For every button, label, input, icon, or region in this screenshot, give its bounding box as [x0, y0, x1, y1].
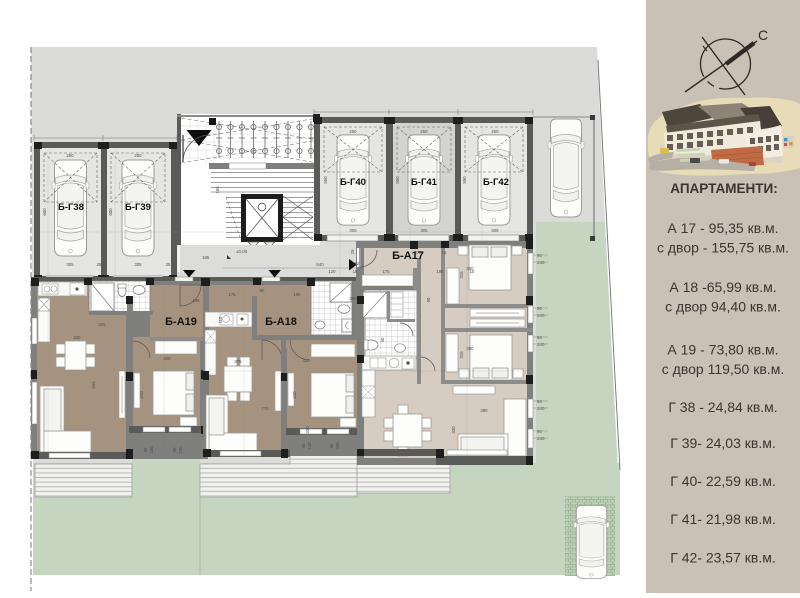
svg-text:250: 250 — [66, 153, 74, 158]
svg-text:240: 240 — [537, 313, 545, 318]
svg-text:375: 375 — [234, 359, 242, 364]
svg-text:380: 380 — [466, 266, 474, 271]
svg-text:325: 325 — [163, 356, 171, 361]
svg-text:90: 90 — [380, 337, 385, 342]
svg-text:90: 90 — [426, 297, 431, 302]
svg-text:120: 120 — [328, 269, 336, 274]
svg-text:320: 320 — [302, 358, 310, 363]
svg-text:Б-А18: Б-А18 — [265, 316, 297, 328]
svg-text:165: 165 — [215, 186, 220, 194]
svg-text:175: 175 — [382, 269, 390, 274]
svg-text:305: 305 — [66, 262, 74, 267]
svg-text:25: 25 — [350, 249, 355, 254]
svg-text:90: 90 — [260, 288, 265, 293]
svg-text:665: 665 — [91, 381, 96, 389]
svg-text:325: 325 — [98, 322, 106, 327]
svg-text:АПАРТАМЕНТИ:: АПАРТАМЕНТИ: — [670, 181, 777, 196]
svg-text:90: 90 — [537, 253, 543, 258]
svg-text:195: 195 — [192, 298, 200, 303]
svg-text:195: 195 — [202, 255, 210, 260]
svg-text:240: 240 — [307, 442, 312, 450]
svg-text:90: 90 — [172, 447, 177, 452]
svg-text:240: 240 — [537, 260, 545, 265]
svg-text:410: 410 — [292, 391, 297, 399]
svg-text:15: 15 — [353, 269, 358, 274]
svg-text:Б-А19: Б-А19 — [165, 316, 197, 328]
svg-text:90: 90 — [537, 399, 543, 404]
svg-text:240: 240 — [335, 442, 340, 450]
svg-text:90: 90 — [329, 443, 334, 448]
svg-text:Г 38 - 24,84 кв.м.: Г 38 - 24,84 кв.м. — [668, 399, 777, 415]
svg-text:305: 305 — [134, 262, 142, 267]
svg-text:600: 600 — [108, 208, 113, 216]
svg-text:380: 380 — [480, 408, 488, 413]
svg-text:360: 360 — [349, 296, 357, 301]
svg-text:Г 40- 22,59 кв.м.: Г 40- 22,59 кв.м. — [670, 473, 776, 489]
svg-text:А 18 -65,99 кв.м.: А 18 -65,99 кв.м. — [669, 279, 776, 295]
svg-text:90: 90 — [537, 429, 543, 434]
svg-text:240: 240 — [537, 342, 545, 347]
svg-text:420: 420 — [73, 335, 81, 340]
svg-text:110: 110 — [218, 316, 223, 323]
svg-text:90: 90 — [537, 335, 543, 340]
svg-text:Б-Г39: Б-Г39 — [125, 202, 151, 213]
svg-text:315: 315 — [459, 271, 464, 279]
svg-text:с двор - 155,75 кв.м.: с двор - 155,75 кв.м. — [657, 240, 789, 256]
svg-text:Б-Г41: Б-Г41 — [411, 177, 438, 188]
svg-text:330: 330 — [451, 426, 456, 434]
svg-text:А 19 - 73,80 кв.м.: А 19 - 73,80 кв.м. — [667, 342, 778, 358]
svg-text:375: 375 — [414, 250, 422, 255]
svg-text:Г 42- 23,57 кв.м.: Г 42- 23,57 кв.м. — [670, 550, 776, 566]
svg-text:90: 90 — [143, 447, 148, 452]
svg-text:с двор 94,40 кв.м.: с двор 94,40 кв.м. — [665, 299, 781, 315]
svg-text:330: 330 — [305, 426, 310, 434]
svg-text:Б-Г42: Б-Г42 — [483, 177, 509, 188]
svg-text:240: 240 — [178, 446, 183, 454]
svg-text:250: 250 — [491, 129, 499, 134]
svg-text:с двор 119,50 кв.м.: с двор 119,50 кв.м. — [662, 361, 784, 377]
svg-text:410: 410 — [139, 391, 144, 399]
svg-text:550: 550 — [323, 176, 328, 184]
svg-text:250: 250 — [420, 129, 428, 134]
svg-text:240: 240 — [149, 446, 154, 454]
svg-text:250: 250 — [134, 153, 142, 158]
svg-text:240: 240 — [537, 406, 545, 411]
svg-text:315: 315 — [459, 351, 464, 359]
svg-text:550: 550 — [395, 176, 400, 184]
svg-text:Б-Г38: Б-Г38 — [58, 202, 84, 213]
svg-text:840: 840 — [316, 262, 324, 267]
svg-text:90: 90 — [301, 443, 306, 448]
svg-text:25: 25 — [97, 262, 102, 267]
svg-text:Г 41- 21,98 кв.м.: Г 41- 21,98 кв.м. — [670, 511, 776, 527]
svg-text:±0.00: ±0.00 — [236, 249, 248, 254]
svg-text:Б-Г40: Б-Г40 — [340, 177, 366, 188]
svg-text:142: 142 — [352, 261, 360, 266]
svg-text:25: 25 — [166, 262, 171, 267]
svg-text:550: 550 — [462, 176, 467, 184]
svg-text:195: 195 — [436, 269, 444, 274]
svg-text:175: 175 — [228, 292, 236, 297]
svg-text:600: 600 — [42, 208, 47, 216]
svg-text:380: 380 — [466, 346, 474, 351]
svg-text:Г 39- 24,03 кв.м.: Г 39- 24,03 кв.м. — [670, 435, 776, 451]
svg-text:А 17 - 95,35 кв.м.: А 17 - 95,35 кв.м. — [667, 220, 778, 236]
svg-text:240: 240 — [537, 436, 545, 441]
svg-text:770: 770 — [261, 406, 269, 411]
svg-text:195: 195 — [293, 292, 301, 297]
svg-text:90: 90 — [537, 306, 543, 311]
svg-text:250: 250 — [349, 129, 357, 134]
svg-text:15: 15 — [442, 250, 447, 255]
svg-text:С: С — [758, 27, 768, 43]
